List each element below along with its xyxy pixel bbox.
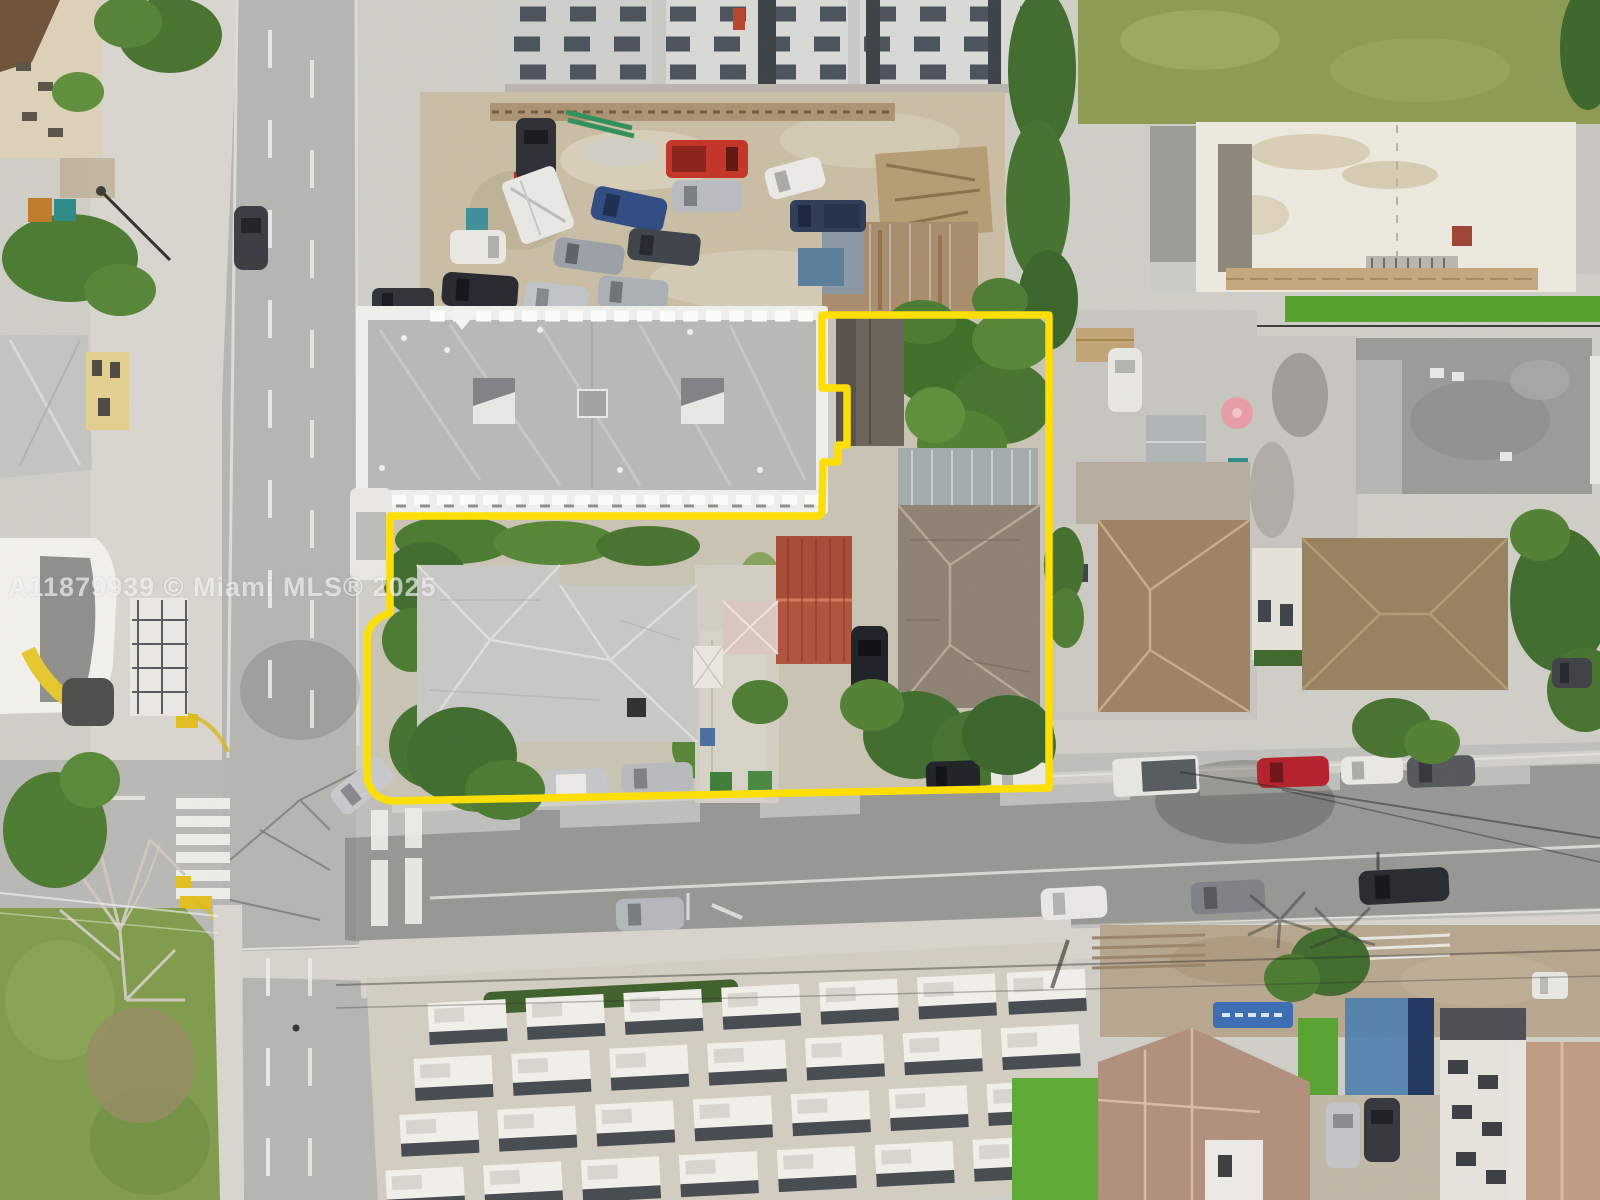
mls-watermark: A11879939 © Miami MLS® 2025 [8,572,437,603]
aerial-photo: A11879939 © Miami MLS® 2025 [0,0,1600,1200]
